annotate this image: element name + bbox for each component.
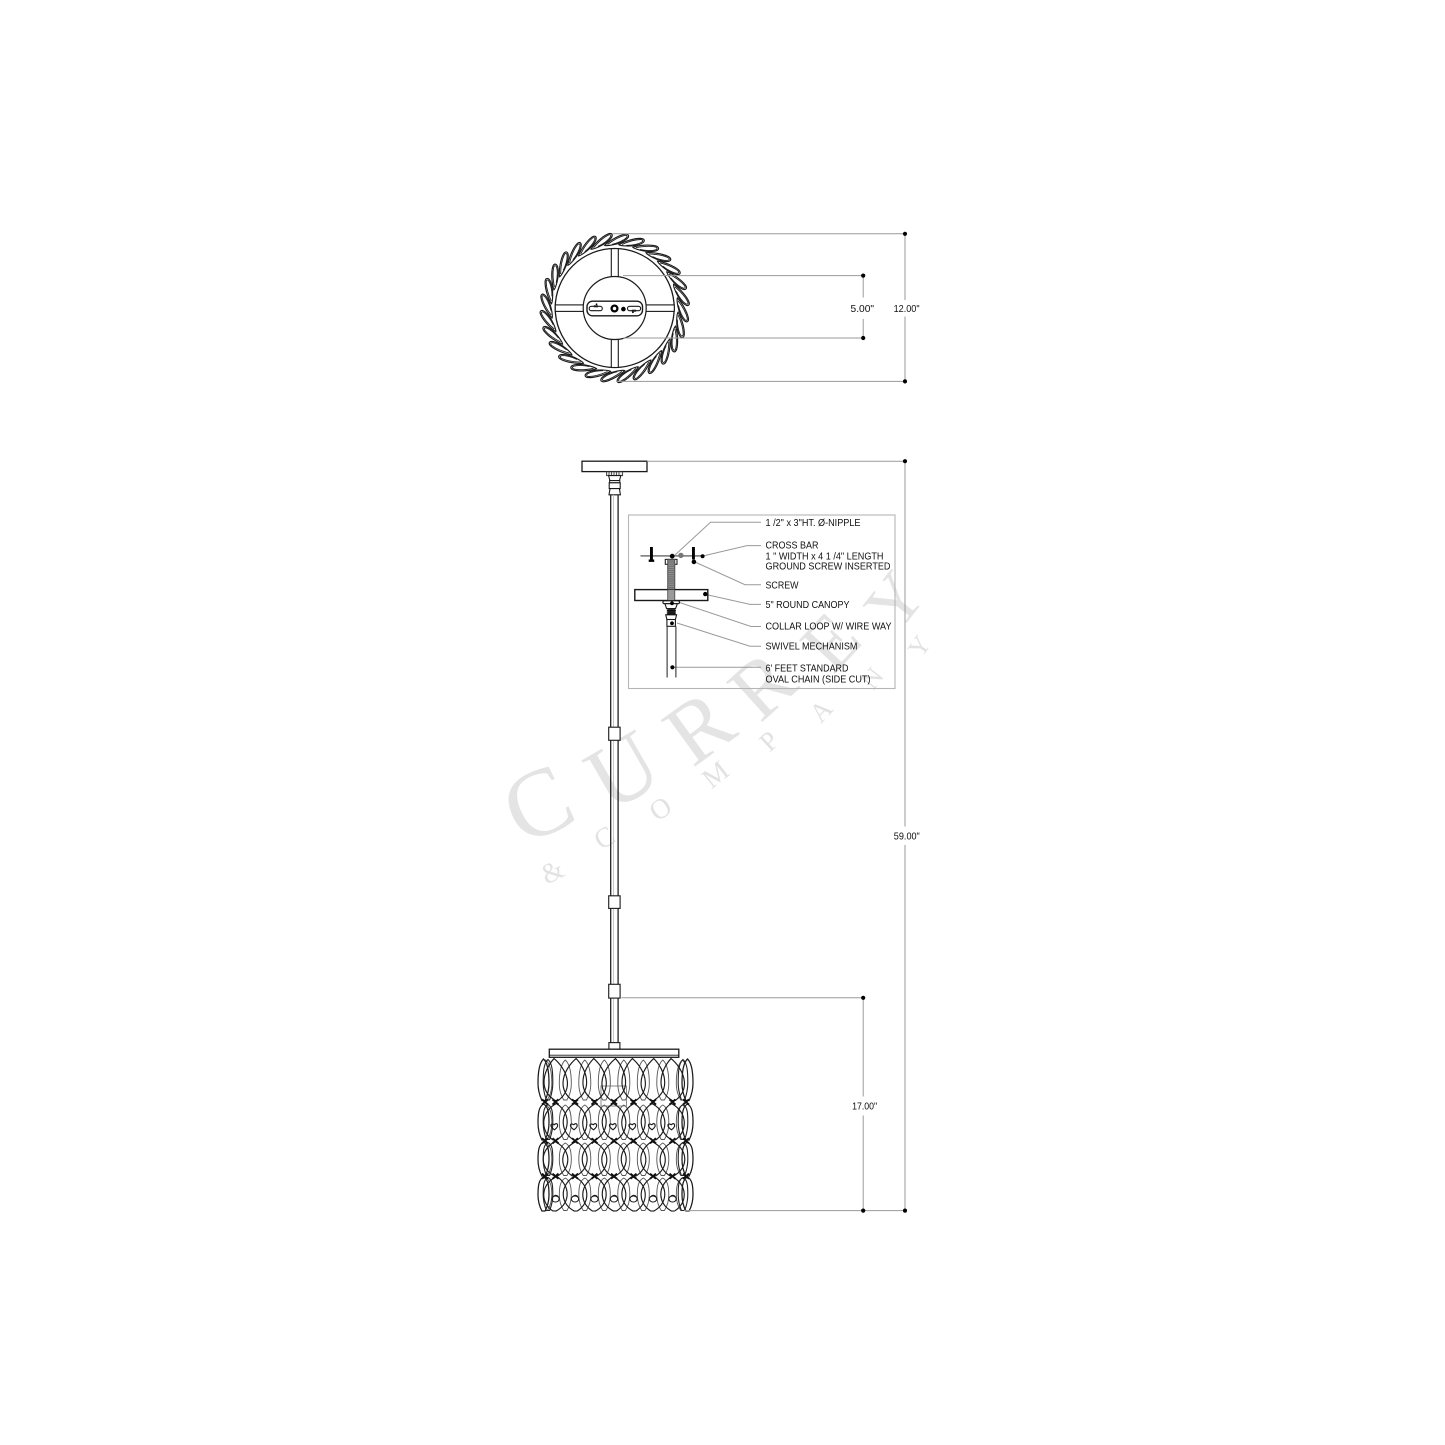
svg-text:5" ROUND CANOPY: 5" ROUND CANOPY [766,600,850,611]
svg-text:59.00": 59.00" [894,832,920,843]
svg-text:COLLAR LOOP W/ WIRE WAY: COLLAR LOOP W/ WIRE WAY [766,622,892,633]
svg-text:SWIVEL MECHANISM: SWIVEL MECHANISM [766,641,858,652]
svg-text:OVAL CHAIN (SIDE CUT): OVAL CHAIN (SIDE CUT) [766,674,871,685]
svg-text:17.00": 17.00" [852,1102,877,1113]
svg-text:1 /2" x 3"HT. Ø-NIPPLE: 1 /2" x 3"HT. Ø-NIPPLE [766,518,861,529]
svg-text:CROSS BAR: CROSS BAR [766,541,819,552]
svg-text:5.00": 5.00" [851,304,875,315]
svg-text:6' FEET STANDARD: 6' FEET STANDARD [766,663,849,674]
svg-text:12.00": 12.00" [894,304,920,315]
svg-text:SCREW: SCREW [766,580,799,591]
svg-text:GROUND SCREW INSERTED: GROUND SCREW INSERTED [766,562,891,573]
